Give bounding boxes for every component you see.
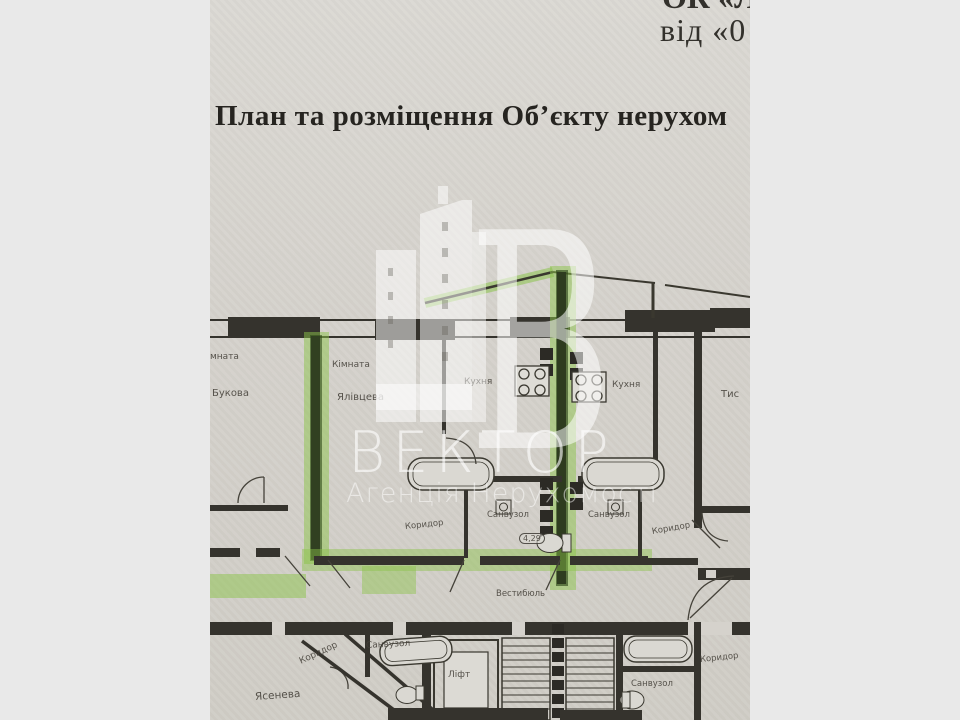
label-bath-top-right: Санвузол xyxy=(588,510,630,520)
stairs-icon xyxy=(502,638,550,720)
bathtub-icon xyxy=(582,458,664,490)
label-room-right: Тис xyxy=(721,389,739,400)
label-bath-bottom-right: Санвузол xyxy=(631,679,673,689)
label-elevator: Ліфт xyxy=(448,670,470,680)
bathtub-icon xyxy=(408,458,494,490)
label-kitchen-left: Кухня xyxy=(464,377,492,387)
elevator-car-icon xyxy=(444,652,488,708)
top-wall xyxy=(210,308,750,340)
label-room-mid-street: Ялівцева xyxy=(337,392,384,403)
page-title: План та розміщення Об’єкту нерухом xyxy=(215,100,728,133)
label-vestibule: Вестибюль xyxy=(496,589,545,599)
bottom-rooms xyxy=(302,622,701,720)
toilet-icon xyxy=(396,687,418,704)
bottom-band-wall xyxy=(210,622,750,635)
label-kitchen-right: Кухня xyxy=(612,380,640,390)
interior-walls xyxy=(210,310,750,580)
header-line2: від «0 xyxy=(660,12,746,49)
document-photo: ОК «Л від «0 План та розміщення Об’єкту … xyxy=(210,0,750,720)
label-room-mid-name: Кімната xyxy=(332,360,370,370)
label-bath-top-left: Санвузол xyxy=(487,510,529,520)
area-badge: 4,29 xyxy=(519,533,545,544)
stairs-icon xyxy=(566,638,614,720)
label-room-left-name: мната xyxy=(210,352,239,362)
label-room-left-street: Букова xyxy=(212,388,249,399)
screenshot-root: ОК «Л від «0 План та розміщення Об’єкту … xyxy=(0,0,960,720)
